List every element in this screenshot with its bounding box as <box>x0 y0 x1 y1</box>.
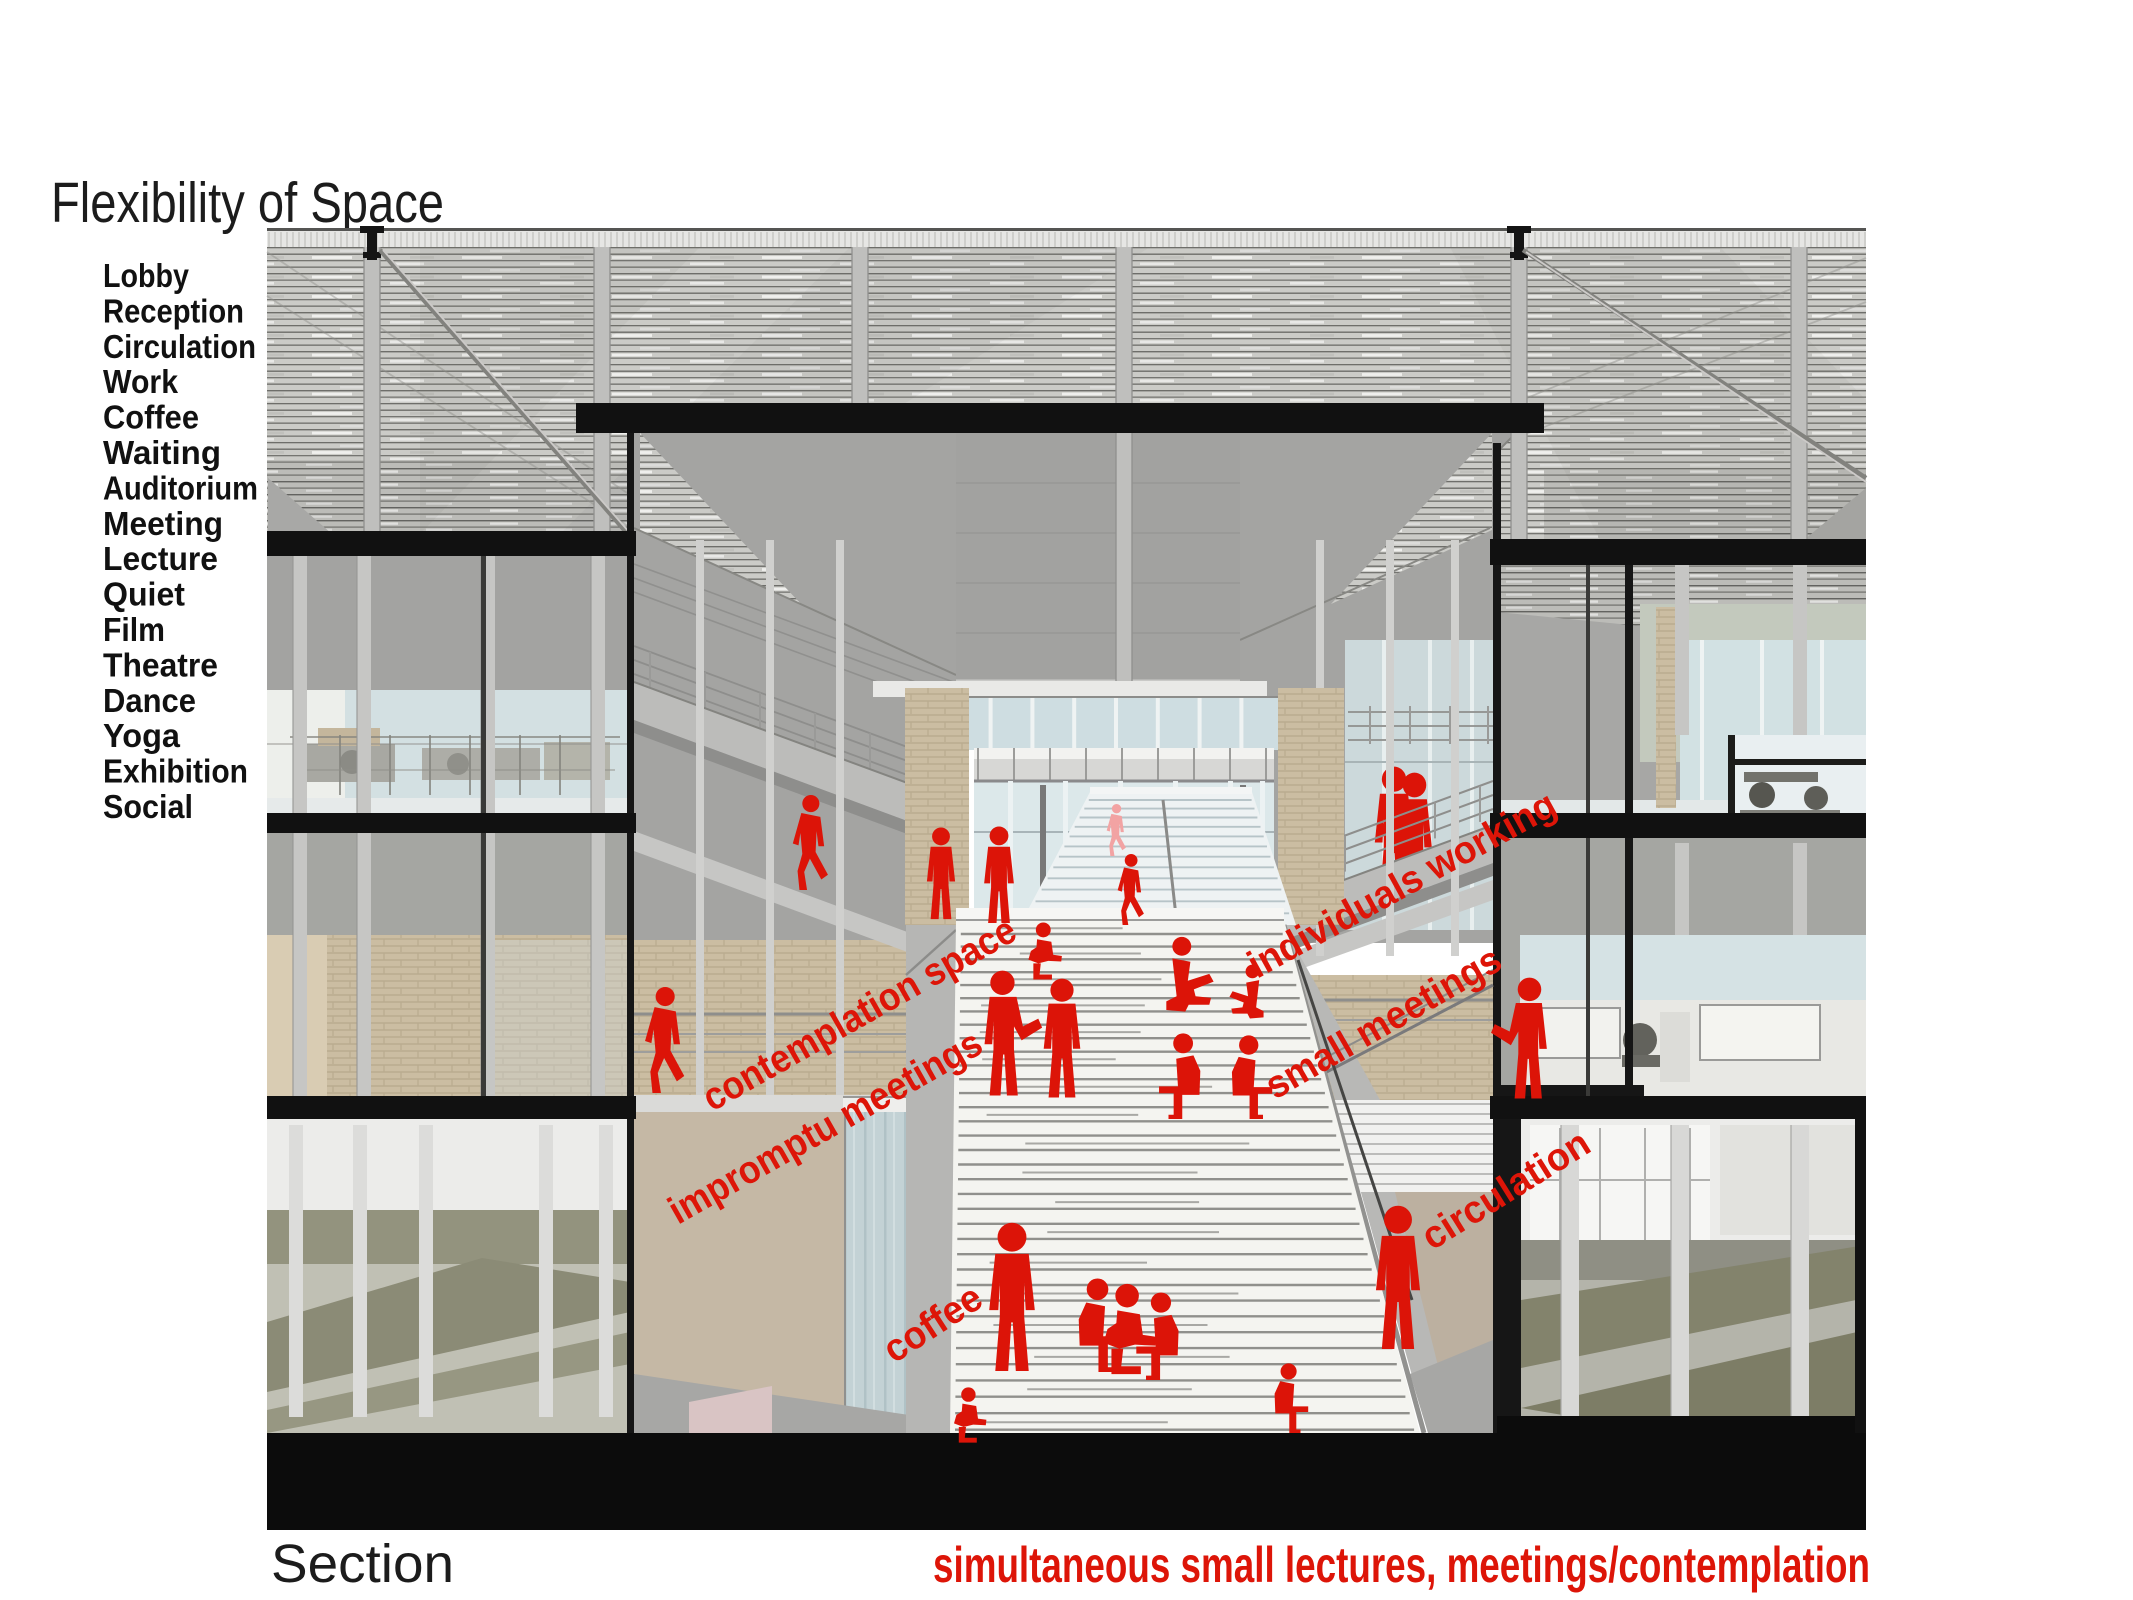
svg-text:Flexibility of Space: Flexibility of Space <box>51 171 444 235</box>
svg-text:Yoga: Yoga <box>103 717 181 754</box>
svg-text:Waiting: Waiting <box>103 434 221 471</box>
svg-text:Coffee: Coffee <box>103 399 199 436</box>
svg-text:Lecture: Lecture <box>103 540 218 577</box>
svg-text:Auditorium: Auditorium <box>103 469 258 506</box>
svg-text:Quiet: Quiet <box>103 576 185 613</box>
svg-text:simultaneous small lectures, m: simultaneous small lectures, meetings/co… <box>933 1537 1870 1593</box>
svg-text:Lobby: Lobby <box>103 257 190 294</box>
svg-text:Film: Film <box>103 611 165 648</box>
svg-text:Work: Work <box>103 363 179 400</box>
svg-text:Social: Social <box>103 788 193 825</box>
svg-text:Reception: Reception <box>103 292 244 329</box>
svg-text:Meeting: Meeting <box>103 505 223 542</box>
svg-text:Section: Section <box>271 1534 454 1594</box>
svg-text:Theatre: Theatre <box>103 646 218 683</box>
svg-text:Exhibition: Exhibition <box>103 753 248 790</box>
svg-text:Circulation: Circulation <box>103 328 256 365</box>
svg-text:Dance: Dance <box>103 682 196 719</box>
